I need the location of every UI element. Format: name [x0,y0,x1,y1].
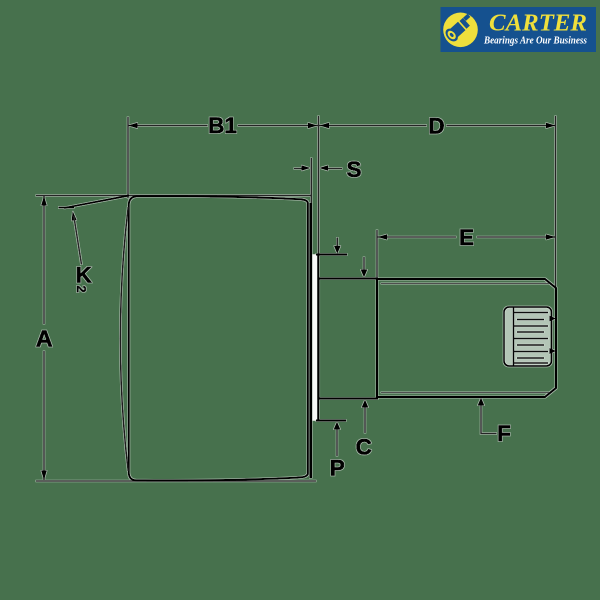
svg-text:F: F [497,421,511,446]
svg-text:CARTER: CARTER [489,11,587,37]
svg-text:P: P [330,456,345,481]
svg-text:S: S [346,157,361,182]
svg-text:A: A [36,326,53,352]
svg-text:K: K [76,263,93,288]
svg-text:E: E [459,225,474,250]
svg-text:2: 2 [74,285,89,292]
svg-text:C: C [356,435,372,460]
svg-text:D: D [428,114,444,139]
svg-text:Bearings Are Our Business: Bearings Are Our Business [483,35,587,47]
svg-text:B1: B1 [208,113,237,138]
